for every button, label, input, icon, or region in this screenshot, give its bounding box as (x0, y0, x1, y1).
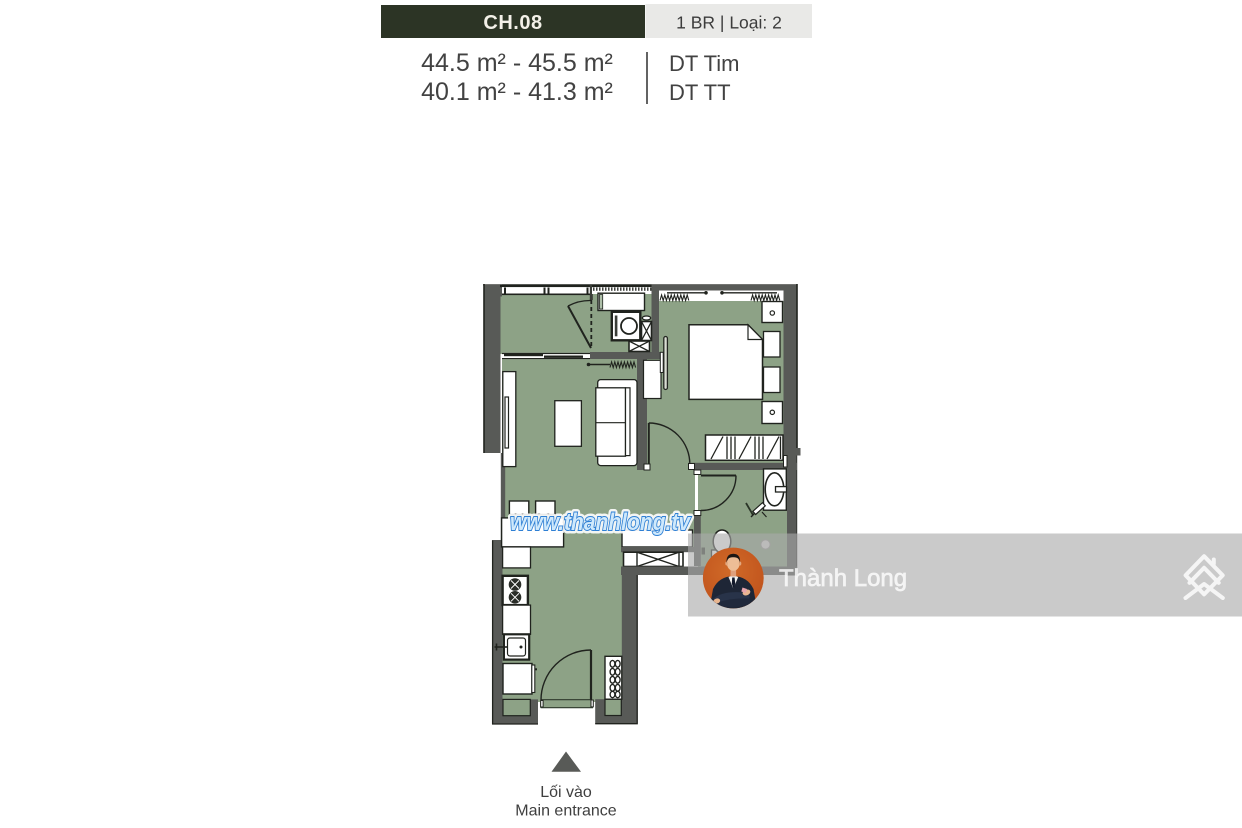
svg-text:40.1 m² - 41.3 m²: 40.1 m² - 41.3 m² (421, 78, 613, 106)
svg-text:CH.08: CH.08 (483, 12, 542, 34)
svg-text:Thành Long: Thành Long (779, 565, 907, 592)
svg-text:www.thanhlong.tv: www.thanhlong.tv (510, 509, 691, 536)
svg-text:DT Tim: DT Tim (669, 51, 739, 76)
svg-text:44.5 m² - 45.5 m²: 44.5 m² - 45.5 m² (421, 49, 613, 77)
svg-text:Lối vào: Lối vào (540, 784, 592, 801)
svg-text:1 BR | Loại: 2: 1 BR | Loại: 2 (676, 13, 782, 33)
svg-text:DT TT: DT TT (669, 80, 731, 105)
svg-text:Main entrance: Main entrance (515, 803, 616, 820)
